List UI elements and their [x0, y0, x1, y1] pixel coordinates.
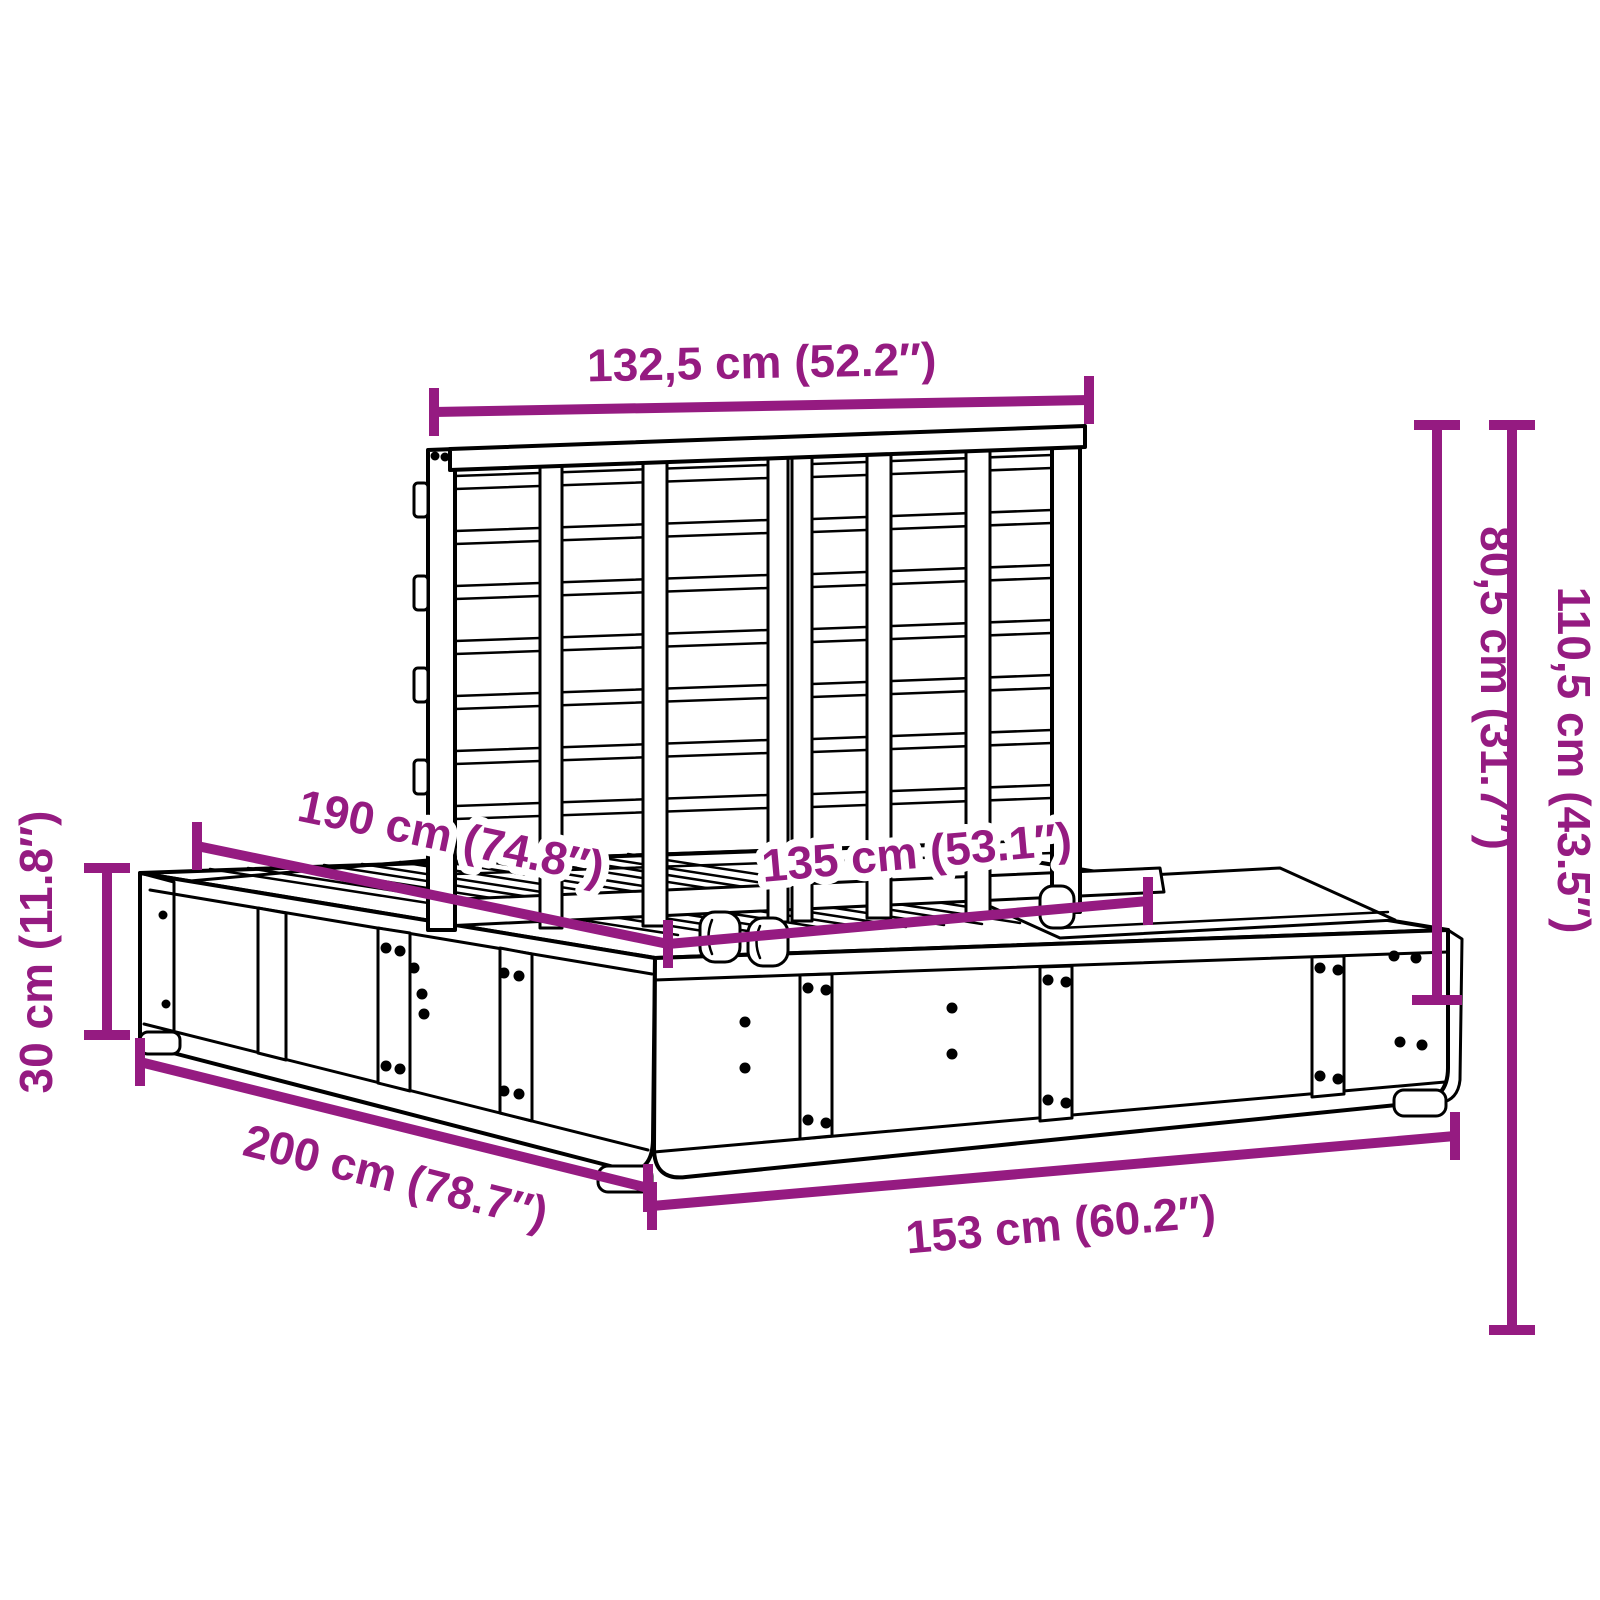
- headboard-mount-tabs: [414, 483, 428, 794]
- bed-frame-dimension-diagram: 132,5 cm (52.2″) 80,5 cm (31.7″) 110,5 c…: [0, 0, 1600, 1600]
- headboard-slats-right-panel: [812, 455, 1052, 862]
- dim-total-width-label: 153 cm (60.2″): [903, 1185, 1217, 1264]
- dim-total-height-label: 110,5 cm (43.5″): [1548, 587, 1600, 934]
- headboard-slats-left-panel: [455, 465, 768, 874]
- dim-headboard-height: 80,5 cm (31.7″): [1412, 425, 1523, 1000]
- dim-headboard-width-label: 132,5 cm (52.2″): [587, 333, 937, 392]
- diagram-page: 132,5 cm (52.2″) 80,5 cm (31.7″) 110,5 c…: [0, 0, 1600, 1600]
- dim-base-height: 30 cm (11.8″): [10, 811, 130, 1094]
- dim-base-height-label: 30 cm (11.8″): [10, 811, 62, 1094]
- dim-headboard-width: 132,5 cm (52.2″): [434, 333, 1089, 436]
